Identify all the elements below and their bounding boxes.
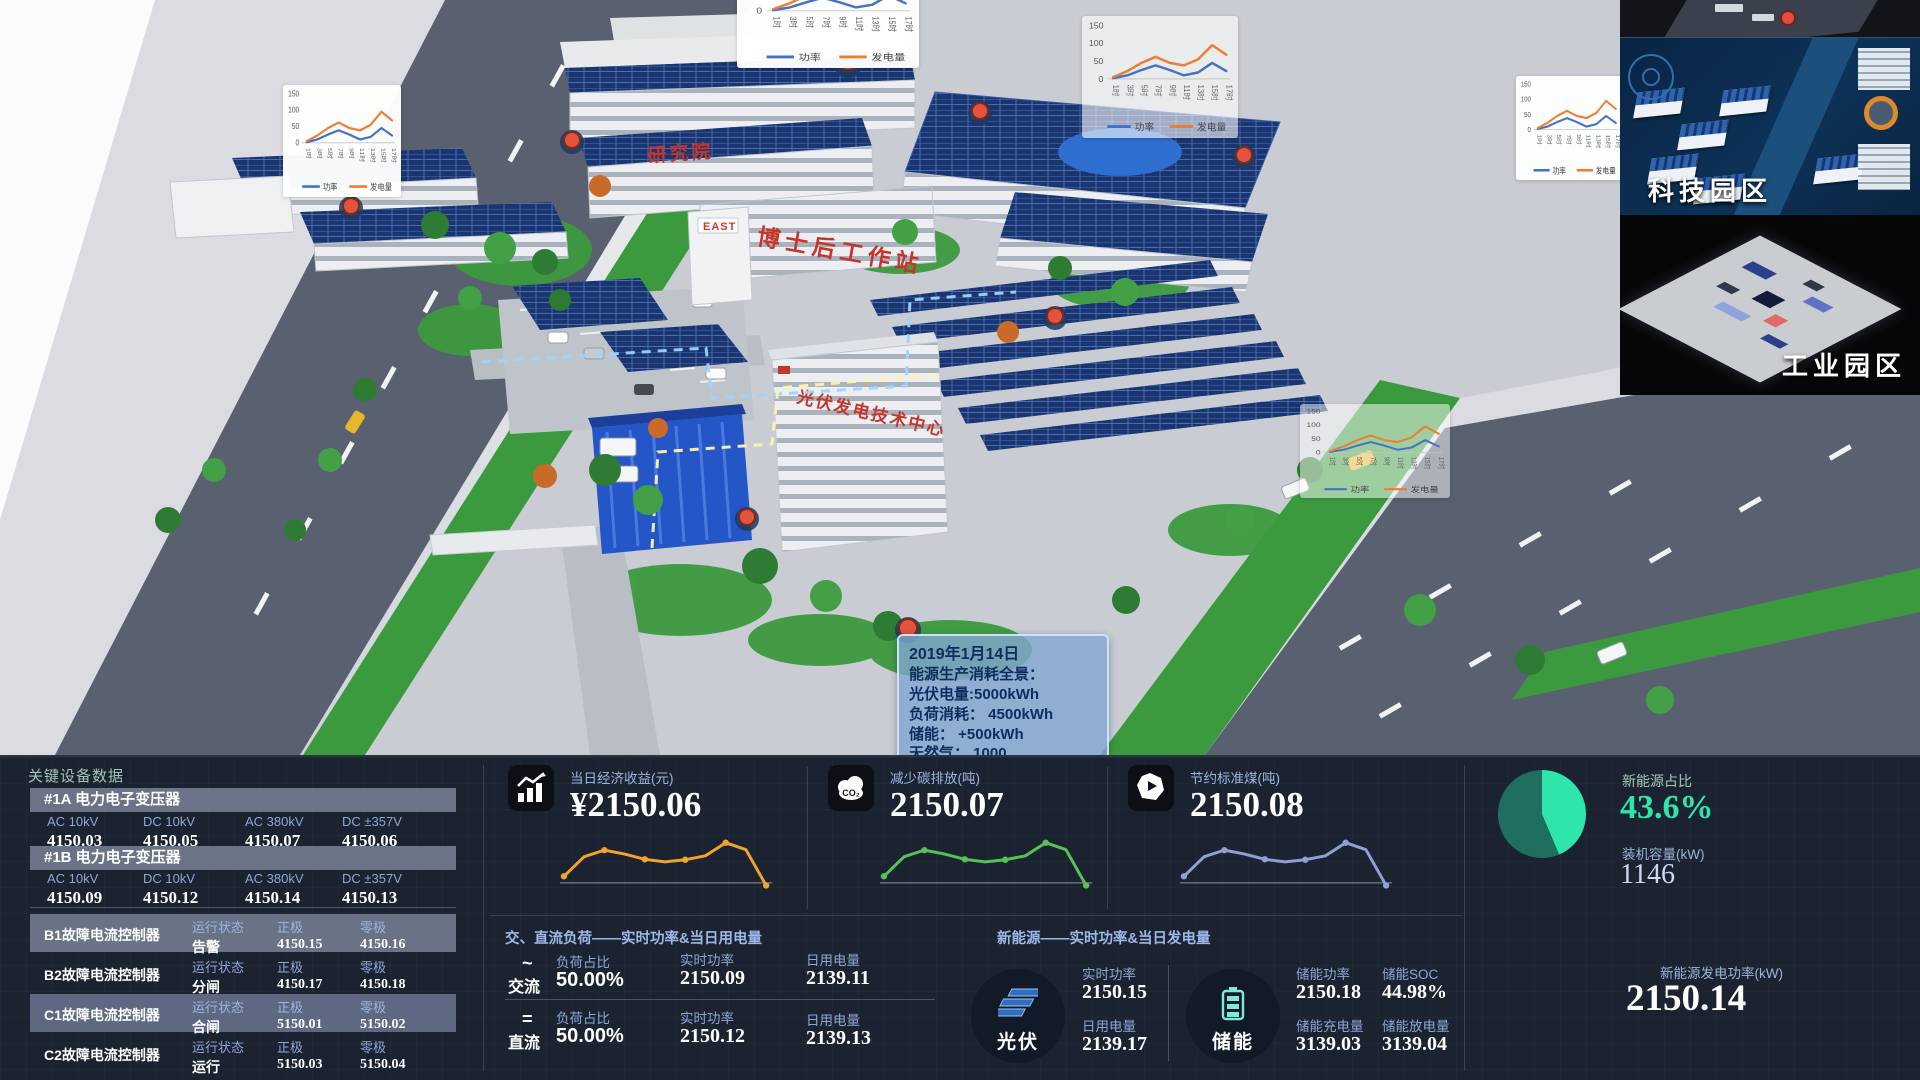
energy-ratio-value: 43.6%: [1620, 789, 1714, 827]
power-col-label: 实时功率: [680, 1007, 734, 1027]
svg-text:150: 150: [1521, 81, 1531, 89]
svg-text:150: 150: [288, 89, 299, 99]
svg-text:5时: 5时: [326, 148, 334, 159]
kpi-value: 2150.08: [1190, 785, 1304, 825]
poi-marker[interactable]: [339, 196, 363, 220]
building-power-chart: 1501005001时3时5时7时9时11时13时15时17时功率发电量: [1516, 76, 1624, 180]
pv-energy-value: 2139.17: [1082, 1033, 1147, 1056]
svg-text:9时: 9时: [348, 148, 356, 159]
energy-col-label: 日用电量: [806, 1009, 860, 1029]
transformer-1b-header: #1B 电力电子变压器: [30, 846, 456, 870]
kpi-economic-income: 当日经济收益(元) ¥2150.06: [500, 757, 800, 915]
svg-text:1时: 1时: [1536, 135, 1543, 145]
svg-text:17时: 17时: [1437, 457, 1447, 470]
coal-icon: [1128, 765, 1174, 811]
svg-text:3时: 3时: [315, 148, 323, 159]
east-logo: EAST: [703, 221, 736, 233]
transformer-metric: AC 380kV4150.14: [245, 871, 304, 908]
svg-text:5时: 5时: [1555, 135, 1562, 145]
capacity-value: 1146: [1620, 859, 1675, 891]
minimap-marker-dot: [1780, 10, 1796, 26]
energy-overview-tooltip: 2019年1月14日 能源生产消耗全景： 光伏电量:5000kWh 负荷消耗： …: [897, 634, 1109, 755]
svg-text:50: 50: [292, 121, 299, 131]
storage-charge-value: 3139.03: [1296, 1033, 1361, 1056]
dc-name: 直流: [508, 1029, 540, 1053]
divider: [1464, 765, 1465, 1071]
kpi-sparkline: [876, 833, 1104, 897]
battery-icon: [1213, 985, 1253, 1025]
svg-text:1时: 1时: [305, 148, 313, 159]
svg-text:9时: 9时: [837, 16, 848, 27]
kpi-label: 当日经济收益(元): [570, 767, 674, 787]
poi-marker[interactable]: [1232, 145, 1256, 169]
dc-energy: 2139.13: [806, 1027, 871, 1050]
building-power-chart: 1501005001时3时5时7时9时11时13时15时17时功率发电量: [1300, 404, 1450, 498]
building-pv-center: [768, 332, 948, 552]
svg-text:100: 100: [1089, 38, 1104, 48]
svg-text:5时: 5时: [1355, 457, 1365, 466]
controller-row-b1[interactable]: B1故障电流控制器 运行状态告警 正极4150.15 零极4150.16: [30, 914, 456, 952]
svg-text:100: 100: [1521, 96, 1531, 104]
svg-text:11时: 11时: [1182, 85, 1192, 101]
tooltip-storage: 储能： +500kWh: [909, 725, 1097, 745]
divider: [1168, 965, 1169, 1061]
svg-text:9时: 9时: [1168, 85, 1178, 97]
minimap-chip: [1752, 14, 1774, 21]
svg-text:11时: 11时: [854, 16, 865, 31]
svg-text:13时: 13时: [1595, 135, 1602, 149]
dashboard-strip: 关键设备数据 #1A 电力电子变压器 AC 10kV4150.03 DC 10k…: [0, 755, 1920, 1080]
storage-soc-value: 44.98%: [1382, 981, 1447, 1004]
svg-text:13时: 13时: [1409, 457, 1419, 470]
divider: [807, 767, 808, 909]
svg-text:发电量: 发电量: [1411, 485, 1440, 494]
new-energy-panel-title: 新能源——实时功率&当日发电量: [997, 927, 1210, 948]
solar-panel-icon: [998, 985, 1038, 1025]
svg-text:7时: 7时: [1369, 457, 1379, 466]
minimap-radar: [1628, 54, 1674, 100]
svg-text:3时: 3时: [1125, 85, 1135, 97]
kpi-value: ¥2150.06: [570, 785, 701, 825]
storage-charge-label: 储能充电量: [1296, 1015, 1364, 1035]
transformer-metric: AC 10kV4150.09: [47, 871, 102, 908]
storage-power-label: 储能功率: [1296, 963, 1350, 983]
kpi-label: 节约标准煤(吨): [1190, 767, 1280, 787]
storage-name: 储能: [1186, 1027, 1280, 1054]
building-power-chart: 1501005001时3时5时7时9时11时13时15时17时功率发电量: [1082, 16, 1238, 138]
svg-text:发电量: 发电量: [370, 181, 392, 192]
divider: [30, 907, 456, 908]
svg-text:0: 0: [1527, 127, 1531, 135]
svg-text:5时: 5时: [1139, 85, 1149, 97]
svg-text:0: 0: [296, 138, 300, 148]
svg-text:150: 150: [1089, 20, 1104, 30]
svg-text:功率: 功率: [1135, 121, 1155, 133]
transformer-1a-header: #1A 电力电子变压器: [30, 788, 456, 812]
svg-text:5时: 5时: [804, 16, 815, 27]
svg-text:9时: 9时: [1575, 135, 1582, 145]
kpi-value: 2150.07: [890, 785, 1004, 825]
kpi-coal-saving: 节约标准煤(吨) 2150.08: [1120, 757, 1430, 915]
svg-text:15时: 15时: [1423, 457, 1433, 470]
energy-col-label: 日用电量: [806, 949, 860, 969]
svg-text:100: 100: [288, 105, 299, 115]
load-panel-title: 交、直流负荷——实时功率&当日用电量: [505, 927, 762, 948]
tooltip-load: 负荷消耗： 4500kWh: [909, 705, 1097, 725]
svg-text:17时: 17时: [390, 148, 398, 163]
svg-text:17时: 17时: [1224, 85, 1234, 101]
svg-text:9时: 9时: [1382, 457, 1392, 466]
svg-text:3时: 3时: [1546, 135, 1553, 145]
minimap-building: [1677, 120, 1729, 151]
svg-text:50: 50: [1094, 56, 1104, 66]
svg-text:7时: 7时: [337, 148, 345, 159]
minimap-preview-shape: [1656, 0, 1894, 37]
svg-text:3时: 3时: [788, 16, 799, 27]
svg-text:1时: 1时: [1328, 457, 1338, 466]
tooltip-title: 能源生产消耗全景：: [909, 665, 1097, 685]
minimap-column: 科技园区 工业园区: [1620, 0, 1920, 395]
svg-text:CO₂: CO₂: [842, 788, 860, 798]
svg-text:50: 50: [1524, 111, 1531, 119]
storage-circle: 储能: [1186, 969, 1280, 1063]
co2-cloud-icon: CO₂: [828, 765, 874, 811]
tooltip-pv: 光伏电量:5000kWh: [909, 685, 1097, 705]
tooltip-gas: 天然气： 1000: [909, 744, 1097, 755]
divider: [483, 765, 484, 1071]
pv-power-value: 2150.15: [1082, 981, 1147, 1004]
controller-row-b2[interactable]: B2故障电流控制器 运行状态分闸 正极4150.17 零极4150.18: [30, 954, 456, 992]
ac-energy: 2139.11: [806, 967, 870, 990]
dc-power: 2150.12: [680, 1025, 745, 1048]
poi-marker[interactable]: [968, 101, 992, 125]
pv-circle: 光伏: [971, 969, 1065, 1063]
svg-text:13时: 13时: [369, 148, 377, 163]
poi-marker[interactable]: [560, 130, 584, 154]
divider: [490, 915, 1462, 916]
svg-text:1时: 1时: [771, 16, 782, 27]
kpi-carbon-reduction: CO₂ 减少碳排放(吨) 2150.07: [820, 757, 1105, 915]
building-left-small: [170, 176, 294, 238]
svg-text:功率: 功率: [323, 181, 338, 192]
svg-text:功率: 功率: [1351, 485, 1370, 494]
svg-text:0: 0: [756, 6, 762, 15]
svg-text:0: 0: [1316, 449, 1321, 457]
svg-text:15时: 15时: [380, 148, 388, 163]
svg-text:0: 0: [1099, 74, 1104, 84]
dc-symbol: =: [522, 1009, 533, 1030]
svg-text:15时: 15时: [1604, 135, 1611, 149]
industrial-park-label: 工业园区: [1782, 346, 1906, 383]
divider: [505, 999, 935, 1000]
bar-chart-icon: [508, 765, 554, 811]
controller-row-c1[interactable]: C1故障电流控制器 运行状态合闸 正极5150.01 零极5150.02: [30, 994, 456, 1032]
divider: [1107, 767, 1108, 909]
energy-ratio-pie: [1498, 770, 1586, 858]
ac-name: 交流: [508, 973, 540, 997]
minimap-gauge-ring: [1864, 96, 1898, 130]
svg-text:11时: 11时: [1396, 457, 1406, 469]
svg-text:50: 50: [1311, 435, 1320, 443]
svg-text:13时: 13时: [1196, 85, 1206, 101]
minimap-tech-park[interactable]: 科技园区: [1620, 37, 1920, 216]
svg-text:发电量: 发电量: [1596, 165, 1617, 176]
svg-text:17时: 17时: [903, 16, 914, 32]
minimap-preview-top[interactable]: [1620, 0, 1920, 37]
storage-power-value: 2150.18: [1296, 981, 1361, 1004]
tech-park-label: 科技园区: [1648, 171, 1772, 208]
svg-text:发电量: 发电量: [1197, 121, 1227, 133]
svg-text:100: 100: [1307, 421, 1321, 429]
svg-text:7时: 7时: [1154, 85, 1164, 97]
transformer-metric: DC 10kV4150.12: [143, 871, 198, 908]
minimap-industrial-park[interactable]: 工业园区: [1620, 215, 1920, 395]
gen-power-value: 2150.14: [1626, 977, 1746, 1020]
pv-power-label: 实时功率: [1082, 963, 1136, 983]
controller-row-c2[interactable]: C2故障电流控制器 运行状态运行 正极5150.03 零极5150.04: [30, 1034, 456, 1072]
minimap-chip: [1715, 4, 1743, 12]
pv-name: 光伏: [971, 1027, 1065, 1054]
building-power-chart: 1501005001时3时5时7时9时11时13时15时17时功率发电量: [737, 0, 919, 68]
power-col-label: 实时功率: [680, 949, 734, 969]
kpi-sparkline: [556, 833, 784, 897]
storage-discharge-label: 储能放电量: [1382, 1015, 1450, 1035]
svg-text:功率: 功率: [1552, 165, 1566, 176]
ratio-col-label: 负荷占比: [556, 951, 610, 971]
svg-text:1时: 1时: [1111, 85, 1121, 97]
energy-ratio-label: 新能源占比: [1622, 771, 1692, 791]
svg-text:150: 150: [1307, 407, 1321, 415]
svg-text:3时: 3时: [1341, 457, 1351, 466]
tooltip-date: 2019年1月14日: [909, 644, 1097, 665]
ac-load-ratio: 50.00%: [556, 969, 624, 992]
building-power-chart: 1501005001时3时5时7时9时11时13时15时17时功率发电量: [283, 85, 401, 197]
transformer-metric: DC ±357V4150.13: [342, 871, 402, 908]
svg-text:11时: 11时: [1585, 135, 1592, 148]
svg-text:功率: 功率: [798, 52, 821, 64]
equipment-panel-title: 关键设备数据: [28, 765, 124, 786]
kpi-sparkline: [1176, 833, 1404, 897]
minimap-building: [1719, 86, 1771, 117]
ratio-col-label: 负荷占比: [556, 1007, 610, 1027]
minimap-info-card: [1854, 140, 1914, 194]
svg-text:15时: 15时: [1210, 85, 1220, 101]
storage-soc-label: 储能SOC: [1382, 963, 1438, 983]
ac-symbol: ~: [522, 953, 533, 974]
pv-energy-label: 日用电量: [1082, 1015, 1136, 1035]
ac-power: 2150.09: [680, 967, 745, 990]
storage-discharge-value: 3139.04: [1382, 1033, 1447, 1056]
poi-marker[interactable]: [1043, 306, 1067, 330]
minimap-info-card: [1854, 44, 1914, 94]
dc-load-ratio: 50.00%: [556, 1025, 624, 1048]
svg-text:11时: 11时: [358, 148, 366, 163]
svg-text:7时: 7时: [821, 16, 832, 27]
svg-text:7时: 7时: [1565, 135, 1572, 145]
svg-text:发电量: 发电量: [871, 52, 905, 64]
poi-marker[interactable]: [735, 507, 759, 531]
kpi-label: 减少碳排放(吨): [890, 767, 980, 787]
svg-text:15时: 15时: [887, 16, 898, 32]
svg-text:13时: 13时: [870, 16, 881, 32]
energy-digital-twin-app: 研究院 EAST 博士后工作站: [0, 0, 1920, 1080]
